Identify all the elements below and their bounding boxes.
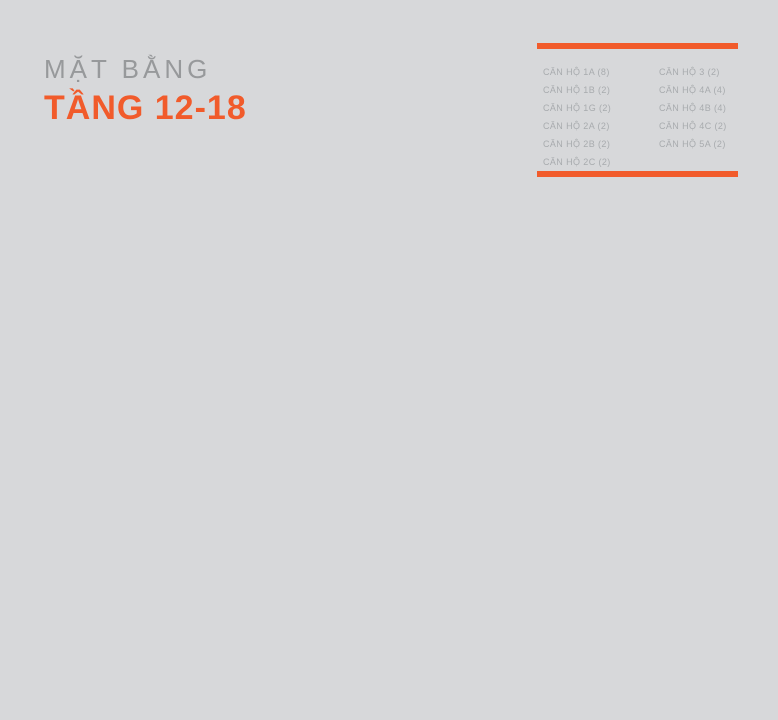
unit-B-3	[285, 418, 333, 446]
unit-A-5	[463, 314, 504, 388]
trees	[60, 200, 683, 613]
legend-item: CĂN HỘ 1A (8)	[543, 63, 611, 81]
core	[250, 386, 276, 426]
page-title: TẦNG 12-18	[44, 89, 247, 128]
unit-A-12A	[520, 470, 570, 504]
unit-type-label: 4A	[495, 432, 506, 442]
unit-number: 2	[313, 454, 323, 475]
unit-B-9	[152, 314, 188, 388]
unit-B-8	[188, 310, 230, 388]
core	[513, 426, 521, 534]
building-wing	[228, 418, 333, 578]
unit-A-3A	[463, 385, 531, 418]
unit-A-3	[586, 388, 612, 426]
unit-number: 10	[618, 403, 637, 424]
unit-number: 1	[315, 486, 325, 507]
tree	[204, 202, 242, 240]
unit-type-label: 2B	[519, 549, 530, 559]
unit-number: 15	[230, 553, 250, 575]
unit-type-label: 4B	[223, 393, 234, 403]
unit-type-label: 1A	[535, 508, 546, 518]
unit-type-label: 2C	[165, 366, 176, 376]
unit-number: 12	[239, 432, 259, 454]
legend-item: CĂN HỘ 4B (4)	[659, 99, 727, 117]
core	[277, 426, 285, 534]
courtyard-tree	[407, 400, 427, 420]
tree	[651, 581, 683, 613]
buildings	[150, 310, 641, 584]
legend-columns: CĂN HỘ 1A (8)CĂN HỘ 1B (2)CĂN HỘ 1G (2)C…	[537, 49, 738, 171]
unit-B-3A	[282, 385, 350, 418]
tree	[181, 574, 203, 596]
tree	[118, 334, 150, 366]
courtyard-tree	[407, 429, 427, 449]
unit-number: 11	[227, 403, 245, 424]
unit-number: 8	[592, 329, 602, 351]
compass-letter: S	[725, 296, 732, 308]
unit-A-6	[497, 310, 537, 388]
bush	[585, 533, 596, 544]
legend-item: CĂN HỘ 2C (2)	[543, 153, 611, 171]
courtyard-tree	[407, 370, 427, 390]
tree	[639, 204, 675, 240]
tree	[298, 202, 336, 240]
unit-type-label: 5A	[494, 486, 505, 496]
unit-number: 3A	[313, 394, 338, 416]
unit-A-16	[463, 530, 513, 584]
tree	[593, 201, 631, 239]
courtyard-pool	[372, 357, 401, 475]
unit-type-label: 2A	[319, 363, 330, 373]
block-title: BLOCK B	[189, 271, 300, 296]
unit-type-label: 2C	[621, 366, 632, 376]
courtyard-tree	[348, 370, 368, 390]
unit-B-3	[192, 388, 218, 426]
courtyard-tree	[407, 340, 427, 360]
legend-item: CĂN HỘ 3 (2)	[659, 63, 727, 81]
unit-A-3	[463, 418, 513, 446]
tree	[60, 200, 100, 240]
unit-number: 9	[159, 330, 169, 352]
unit-type-label: 4A	[495, 454, 506, 464]
legend-item: CĂN HỘ 4A (4)	[659, 81, 727, 99]
courtyard-tree	[348, 457, 368, 477]
unit-number: 7	[544, 329, 554, 351]
unit-A-1	[463, 478, 513, 516]
unit-type-label: 1G	[311, 549, 323, 559]
unit-type-label: 4A	[294, 454, 305, 464]
unit-number: 3A	[466, 394, 491, 416]
building-wing	[150, 316, 350, 426]
unit-B-12B	[228, 504, 277, 536]
unit-number: 7	[244, 329, 254, 351]
building-wing	[463, 418, 570, 578]
unit-number: 6	[282, 329, 292, 351]
unit-number: 3	[314, 417, 323, 436]
unit-number: 12B	[230, 514, 265, 538]
entrance-canopy	[377, 213, 425, 265]
unit-number: 1	[475, 486, 485, 507]
unit-A-9	[613, 314, 641, 388]
unit-type-label: 4B	[252, 453, 263, 463]
unit-A-10	[612, 388, 641, 426]
unit-type-label: 4B	[575, 393, 586, 403]
tree	[543, 200, 583, 240]
page-header: MẶT BẰNG TẦNG 12-18	[44, 54, 247, 128]
unit-type-label: 1A	[248, 508, 259, 518]
unit-number: 6	[507, 329, 517, 351]
legend-bottom-bar	[537, 171, 738, 177]
legend-item: CĂN HỘ 5A (2)	[659, 135, 727, 153]
bush	[629, 533, 640, 544]
unit-number: 12A	[536, 484, 573, 508]
tree	[106, 201, 144, 239]
courtyard	[343, 338, 448, 482]
unit-number: 9	[625, 330, 635, 352]
unit-type-label: 2A	[479, 363, 490, 373]
unit-number: 12	[541, 431, 561, 453]
unit-number: 11	[557, 404, 575, 425]
unit-number: 12B	[535, 514, 570, 538]
unit-type-label: 1A	[579, 346, 590, 356]
bush	[613, 533, 624, 544]
unit-type-label: 1B	[252, 480, 263, 490]
unit-B-11	[218, 388, 250, 426]
unit-B-12A	[228, 470, 277, 504]
unit-type-label: 3	[202, 393, 207, 403]
unit-number: 5	[325, 323, 335, 345]
unit-A-11	[550, 388, 586, 426]
compass-icon: NEWS	[695, 263, 733, 309]
courtyard-tree	[348, 429, 368, 449]
courtyard-tree	[348, 340, 368, 360]
unit-A-2	[463, 446, 513, 478]
unit-type-label: 4B	[535, 453, 546, 463]
unit-A-12	[520, 428, 566, 470]
unit-B-2	[285, 446, 333, 478]
unit-type-label: 5A	[297, 486, 308, 496]
unit-type-label: 1G	[475, 549, 487, 559]
courtyard-tree	[407, 457, 427, 477]
bush	[573, 533, 584, 544]
unit-type-label: 4A	[294, 432, 305, 442]
unit-B-6	[268, 310, 305, 388]
compass-letter: W	[695, 297, 706, 309]
unit-type-label: 1B	[535, 480, 546, 490]
bush	[641, 533, 652, 544]
unit-number: 10	[157, 404, 176, 425]
site-roads	[42, 196, 740, 625]
tree	[250, 200, 290, 240]
building-wing	[463, 316, 641, 426]
unit-number: 2	[475, 454, 485, 475]
unit-type-label: 2B	[267, 549, 278, 559]
unit-A-7	[537, 310, 575, 388]
unit-B-1	[285, 478, 333, 516]
unit-number: 16	[475, 555, 495, 577]
legend: CĂN HỘ 1A (8)CĂN HỘ 1B (2)CĂN HỘ 1G (2)C…	[537, 43, 738, 177]
tree	[454, 201, 492, 239]
unit-number: 5	[468, 323, 478, 345]
tree	[152, 555, 178, 581]
unit-B-16	[285, 530, 330, 584]
floorplan-page: MẶT BẰNG TẦNG 12-18 CĂN HỘ 1A (8)CĂN HỘ …	[0, 0, 778, 720]
unit-number: 8	[198, 329, 208, 351]
unit-type-label: 1A	[232, 346, 243, 356]
unit-A-12B	[520, 504, 570, 536]
legend-column-2: CĂN HỘ 3 (2)CĂN HỘ 4A (4)CĂN HỘ 4B (4)CĂ…	[659, 63, 727, 153]
legend-item: CĂN HỘ 2B (2)	[543, 135, 611, 153]
block-title: BLOCK A	[476, 271, 587, 296]
unit-B-10	[150, 388, 192, 426]
legend-item: CĂN HỘ 2A (2)	[543, 117, 611, 135]
unit-A-8	[575, 310, 613, 388]
unit-texts: 2C91A81A71A62A51034B114C3A4A34A24B121B12…	[157, 271, 637, 577]
compass-letter: E	[724, 263, 731, 275]
tree	[116, 414, 148, 446]
legend-item: CĂN HỘ 1B (2)	[543, 81, 611, 99]
unit-type-label: 1A	[523, 346, 534, 356]
unit-type-label: 1A	[208, 346, 219, 356]
bush	[601, 533, 612, 544]
unit-B-5	[305, 314, 346, 388]
legend-column-1: CĂN HỘ 1A (8)CĂN HỘ 1B (2)CĂN HỘ 1G (2)C…	[543, 63, 611, 171]
unit-B-7	[230, 310, 268, 388]
compass-letter: N	[695, 263, 703, 275]
unit-type-label: 1A	[561, 346, 572, 356]
unit-type-label: 3	[597, 393, 602, 403]
unit-A-15	[513, 536, 570, 580]
unit-number: 3	[476, 417, 485, 436]
unit-type-label: 4C	[495, 389, 506, 399]
tree	[155, 200, 195, 240]
tree	[494, 201, 532, 239]
unit-number: 12A	[229, 484, 266, 508]
legend-item: CĂN HỘ 4C (2)	[659, 117, 727, 135]
legend-item: CĂN HỘ 1G (2)	[543, 99, 611, 117]
unit-type-label: 4C	[296, 389, 307, 399]
unit-number: 15	[546, 553, 566, 575]
core	[522, 380, 550, 426]
unit-B-12	[232, 428, 277, 470]
road-band	[333, 487, 672, 583]
courtyard-tree	[348, 400, 368, 420]
page-subtitle: MẶT BẰNG	[44, 54, 247, 85]
unit-B-15	[228, 536, 290, 580]
unit-type-label: 1A	[268, 346, 279, 356]
unit-number: 16	[305, 555, 325, 577]
